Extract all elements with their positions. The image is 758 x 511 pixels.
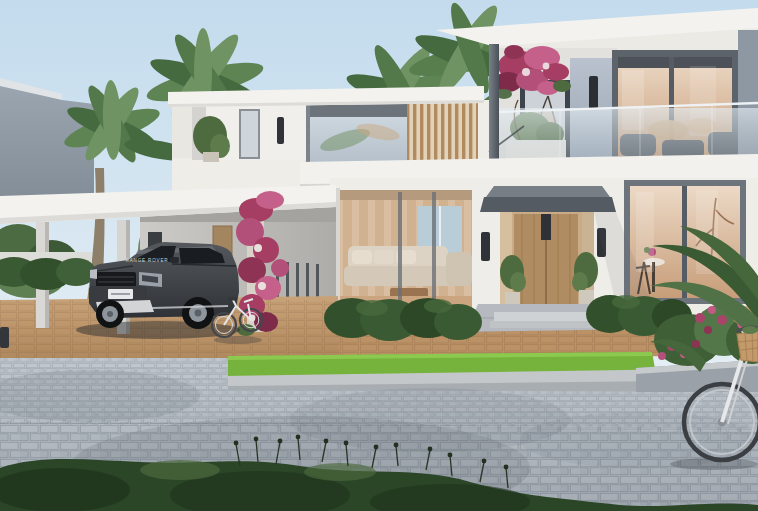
living-room-window — [336, 188, 472, 314]
balcony-glass-railing — [497, 108, 758, 162]
wood-louver-screen — [407, 102, 478, 162]
suv-headlight-left — [90, 269, 97, 279]
terrace-window — [240, 110, 259, 158]
suv-mirror — [170, 257, 179, 263]
pendant-light — [541, 214, 551, 240]
corner-glass-window — [306, 104, 407, 162]
hedge-left-garden — [0, 252, 96, 290]
suv-hood-badge: RANGE ROVER — [126, 258, 169, 263]
hedge-center-left — [324, 298, 482, 341]
entrance-sconce-left — [481, 232, 490, 261]
terrace-sconce — [277, 117, 284, 144]
villa-render-image: RANGE ROVER — [0, 0, 758, 511]
steel-column — [489, 44, 499, 166]
entrance-canopy — [486, 186, 610, 197]
balcony-sconce — [589, 76, 598, 109]
render-canvas: RANGE ROVER — [0, 0, 758, 511]
suv-front-wheel — [96, 300, 124, 328]
suv-rear-wheel — [182, 297, 214, 329]
curbside-object — [0, 327, 9, 348]
